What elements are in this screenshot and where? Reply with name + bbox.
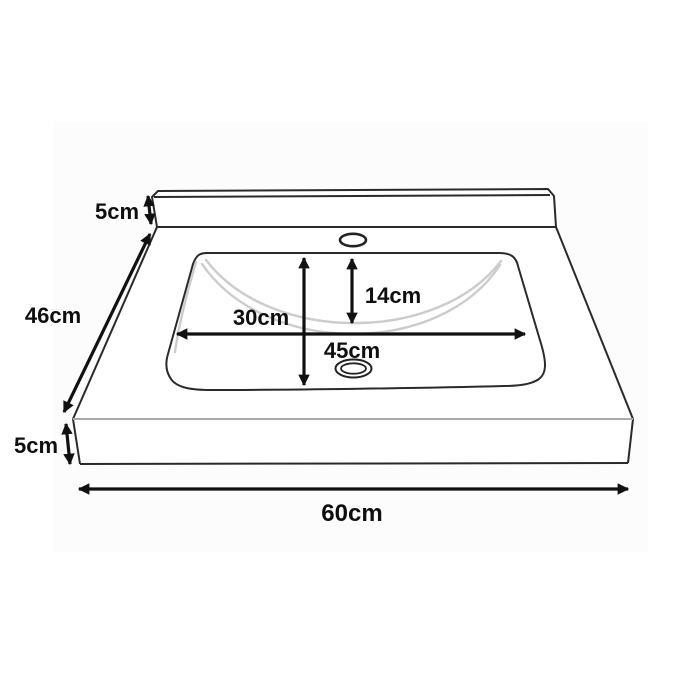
overall-depth-label: 46cm [25,303,81,328]
apron-bottom-edge [80,463,628,464]
drain-inner-ring [341,363,366,373]
overall-width-label: 60cm [321,500,382,527]
basin-inner-depth-label: 14cm [365,283,421,308]
countertop-thickness-label: 5cm [14,433,58,458]
sink-dimension-diagram: 5cm 46cm 5cm 60cm 30cm 14cm 45cm [0,0,700,700]
faucet-hole [340,234,366,246]
basin-width-label: 45cm [324,338,380,363]
basin-front-to-back-label: 30cm [233,305,289,330]
diagram-canvas: 5cm 46cm 5cm 60cm 30cm 14cm 45cm [0,0,700,700]
apron-slab [73,419,633,464]
backsplash-height-label: 5cm [95,199,139,224]
